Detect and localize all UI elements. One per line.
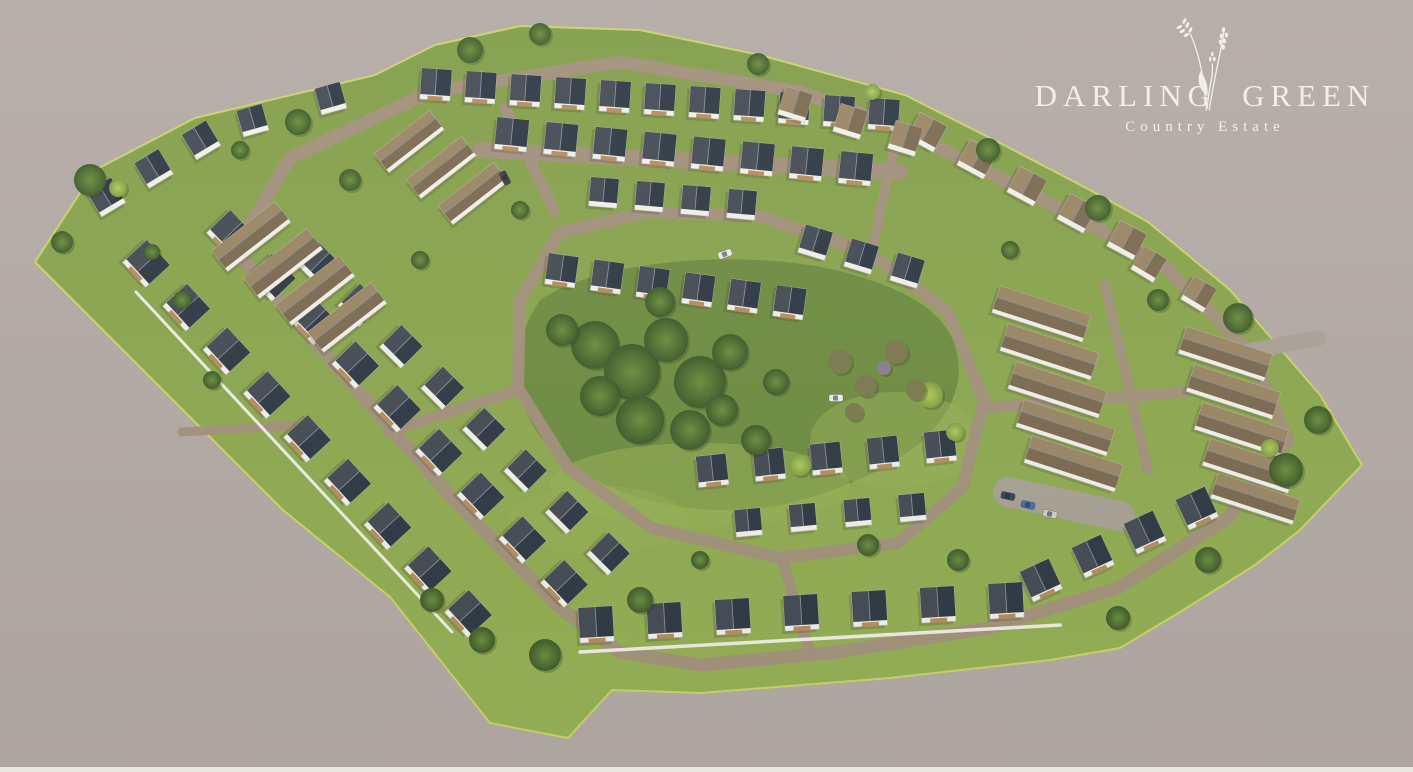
estate-aerial-render: DARLING GREEN Country Estate bbox=[0, 0, 1413, 772]
logo-title-left: DARLING bbox=[1035, 78, 1217, 114]
page-bottom-strip bbox=[0, 767, 1413, 772]
logo-subtitle: Country Estate bbox=[1019, 119, 1391, 136]
logo-title-right: GREEN bbox=[1242, 78, 1375, 114]
logo-title: DARLING GREEN bbox=[1019, 78, 1391, 114]
estate-logo: DARLING GREEN Country Estate bbox=[1019, 16, 1391, 136]
